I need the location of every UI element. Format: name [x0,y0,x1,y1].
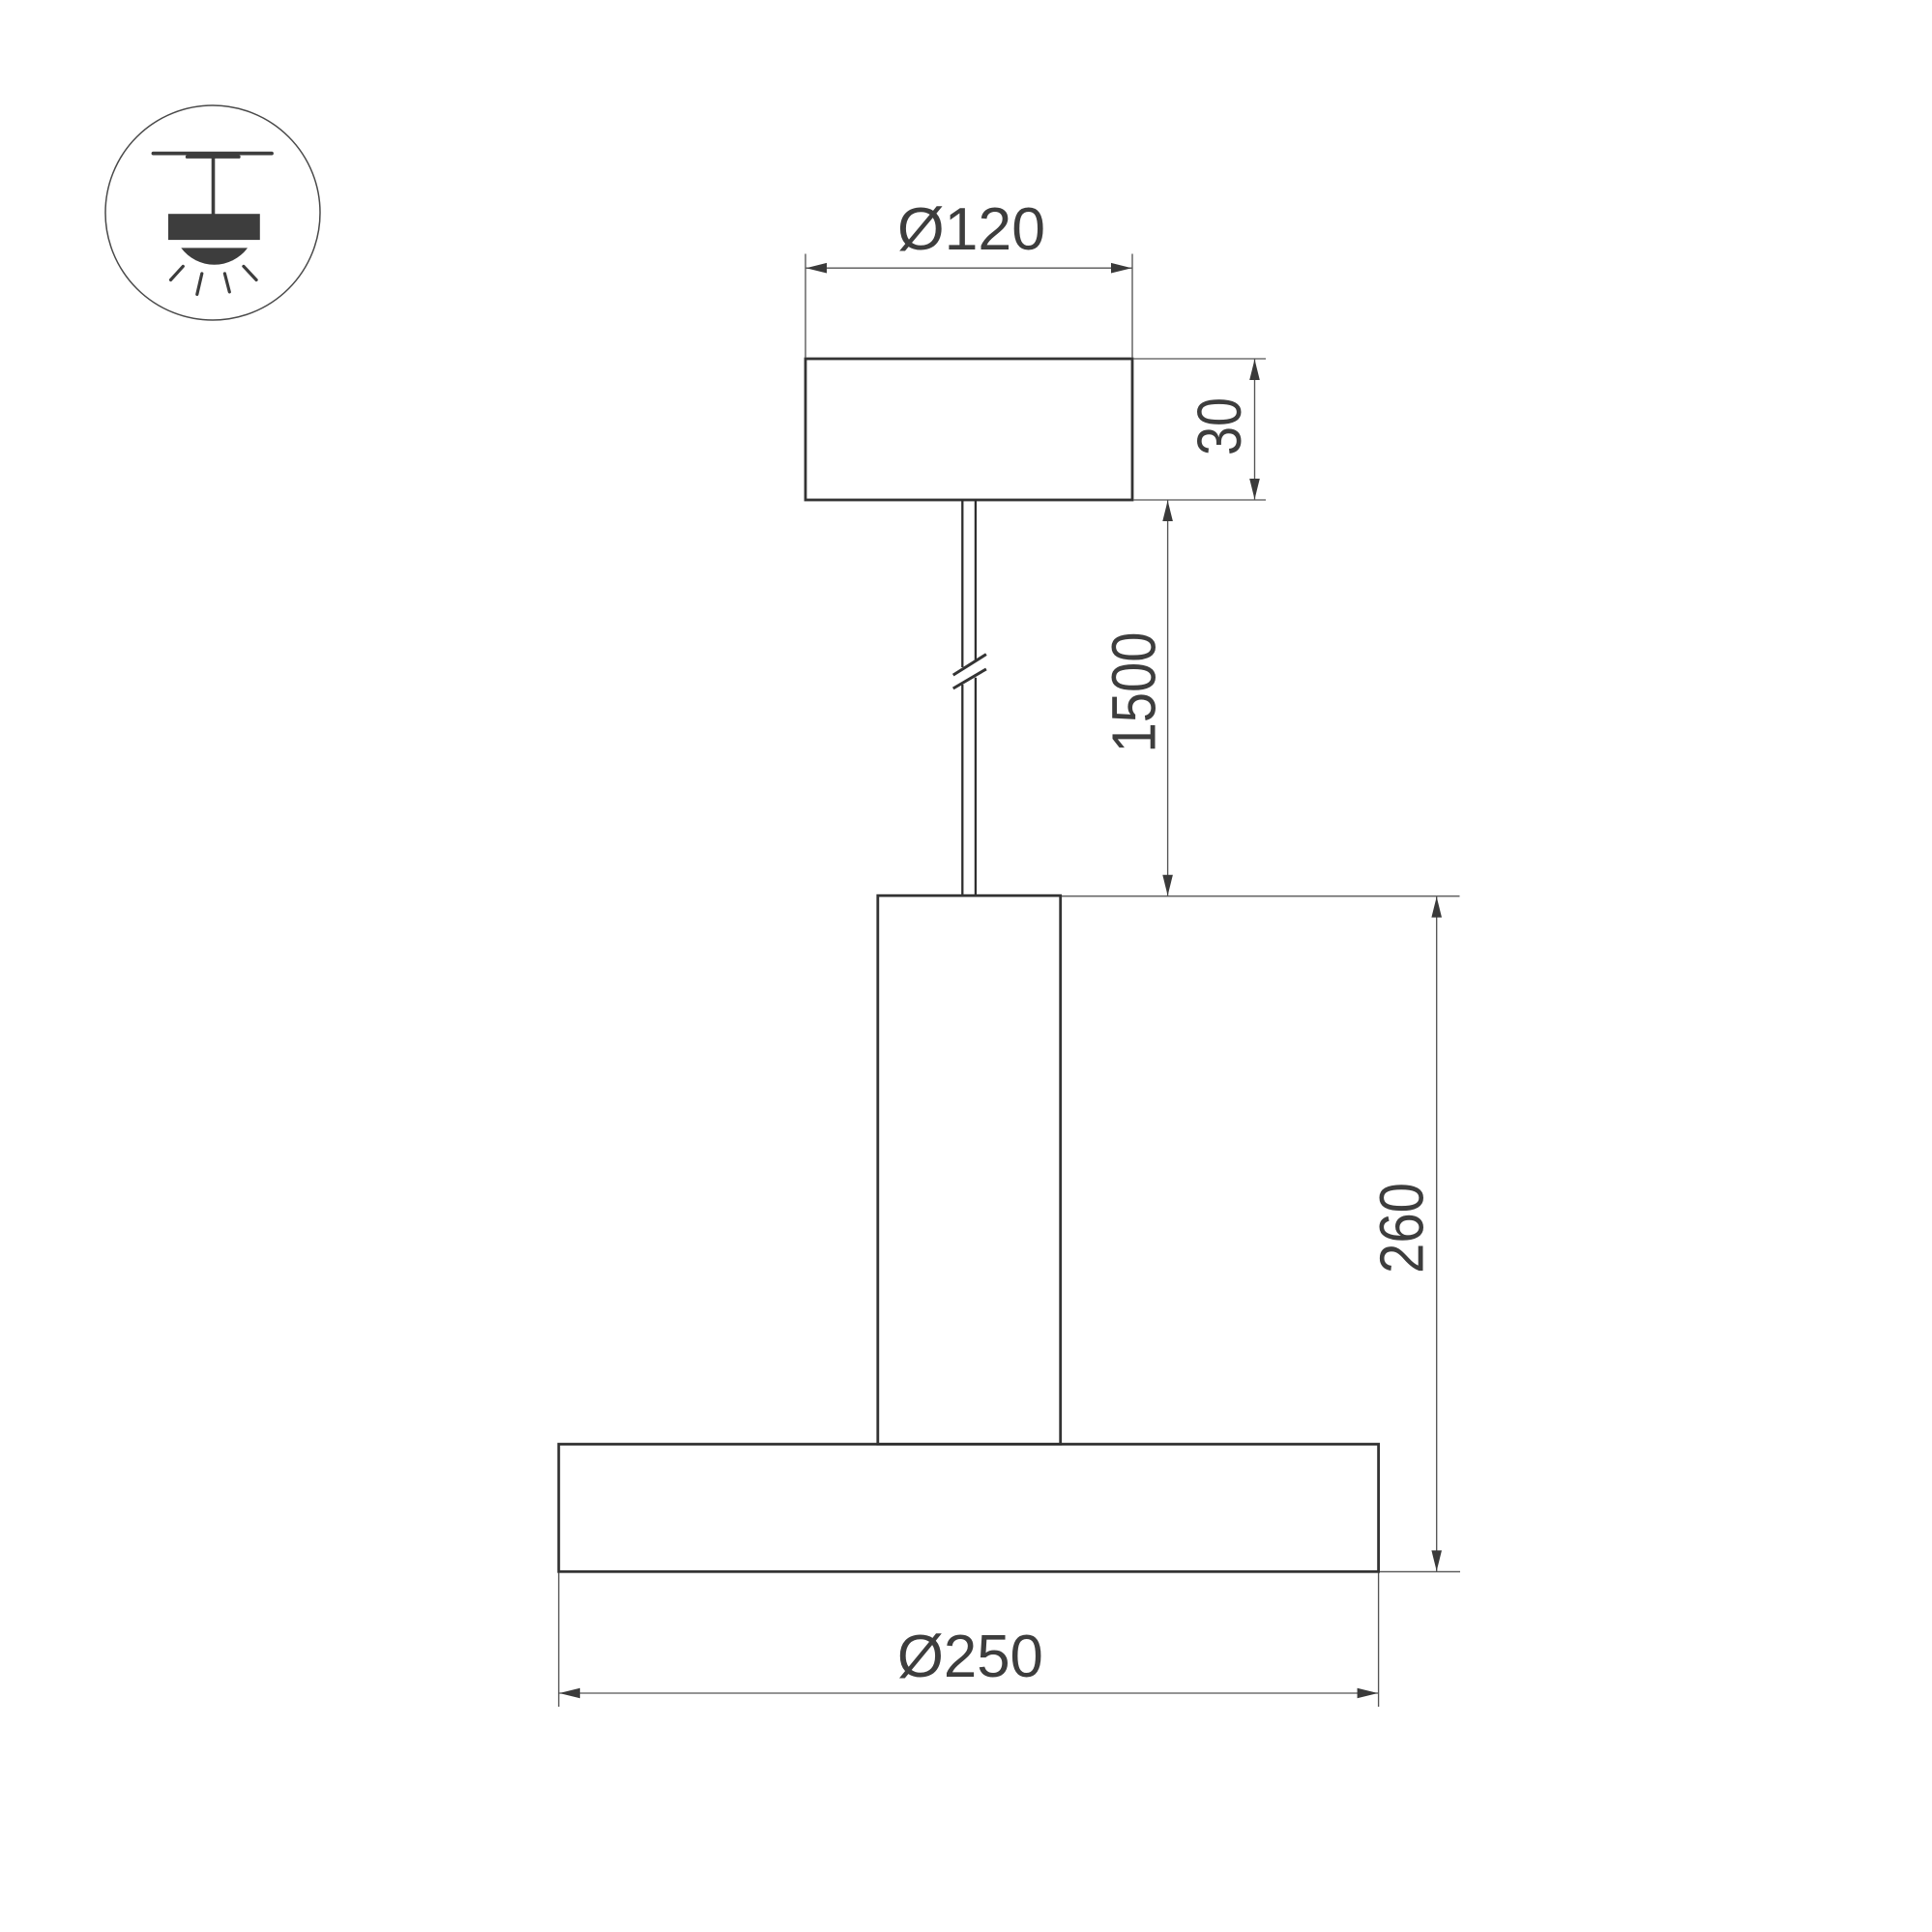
svg-text:Ø120: Ø120 [897,196,1045,263]
svg-text:30: 30 [1185,397,1254,455]
svg-text:260: 260 [1367,1183,1437,1273]
svg-text:Ø250: Ø250 [897,1624,1043,1690]
svg-text:1500: 1500 [1099,632,1169,753]
